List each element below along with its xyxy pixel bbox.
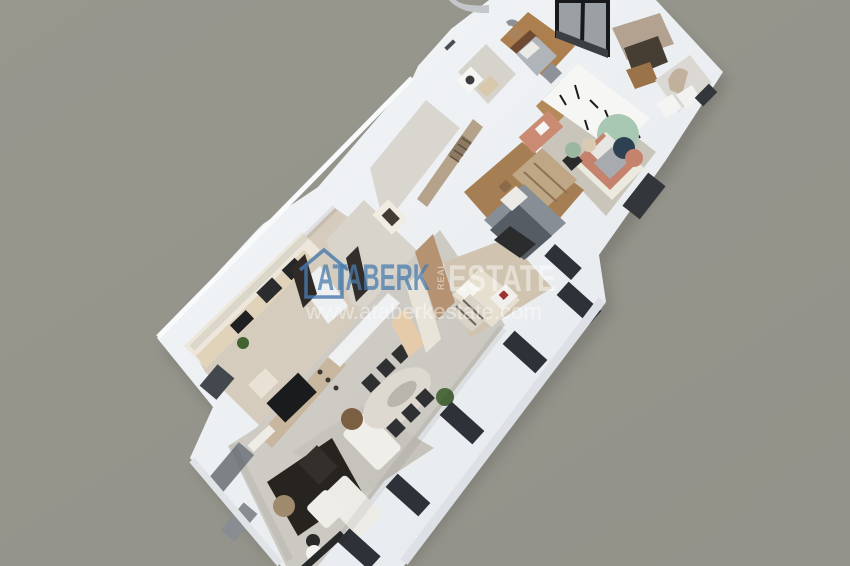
- svg-text:REAL: REAL: [436, 262, 446, 290]
- svg-text:ESTATE: ESTATE: [448, 258, 556, 299]
- svg-text:ATABERK: ATABERK: [317, 257, 430, 298]
- svg-text:www.ataberkestate.com: www.ataberkestate.com: [305, 299, 542, 324]
